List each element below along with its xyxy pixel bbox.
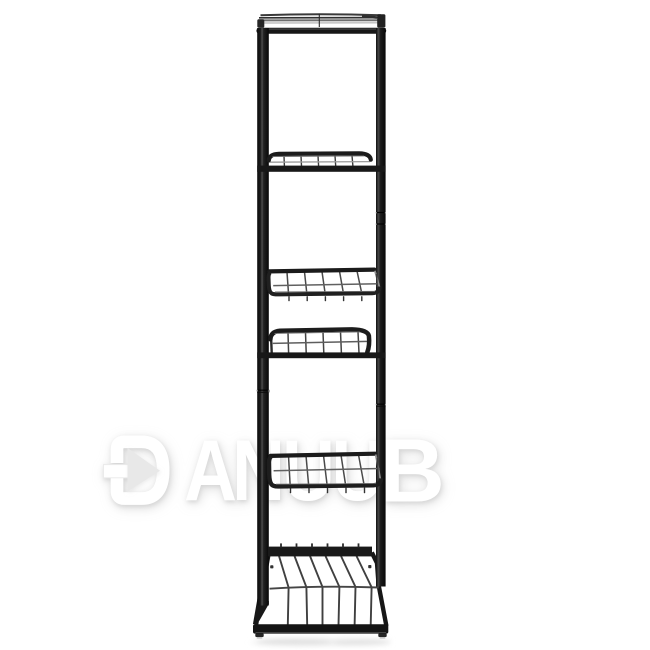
svg-text:A: A bbox=[184, 422, 237, 518]
svg-text:B: B bbox=[380, 422, 445, 522]
